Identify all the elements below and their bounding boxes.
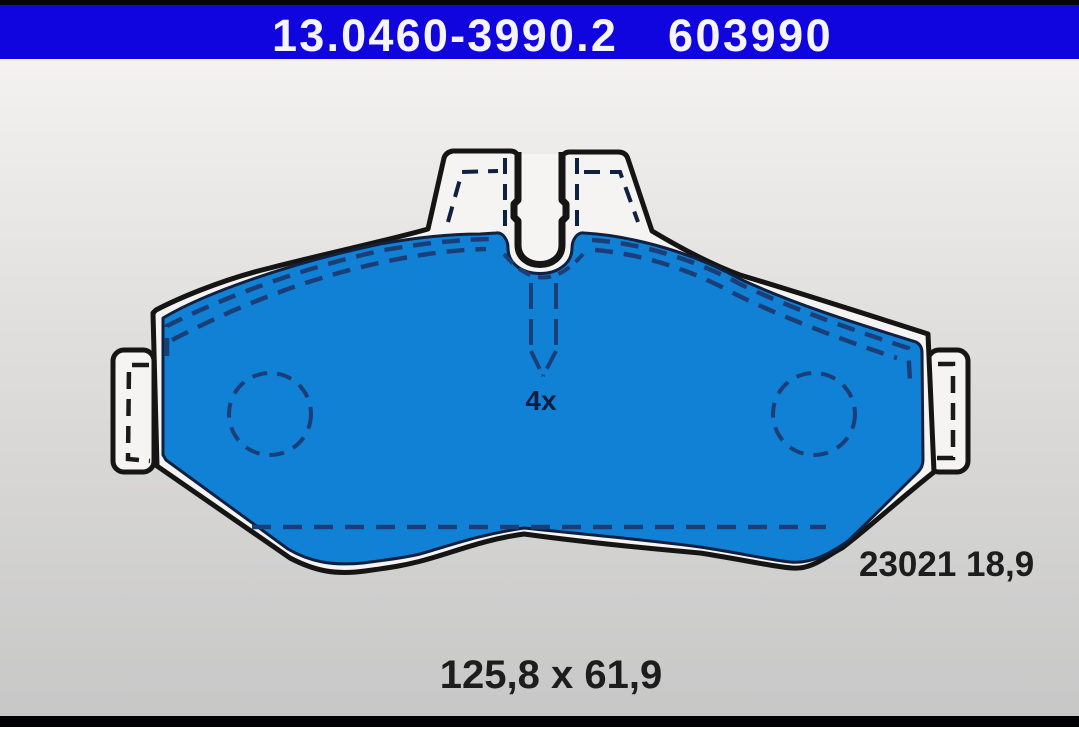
svg-text:125,8 x 61,9: 125,8 x 61,9 bbox=[440, 653, 662, 697]
svg-text:13.0460-3990.2: 13.0460-3990.2 bbox=[272, 10, 618, 61]
svg-text:23021 18,9: 23021 18,9 bbox=[859, 545, 1034, 584]
svg-text:603990: 603990 bbox=[668, 10, 833, 61]
svg-text:4x: 4x bbox=[525, 385, 557, 416]
